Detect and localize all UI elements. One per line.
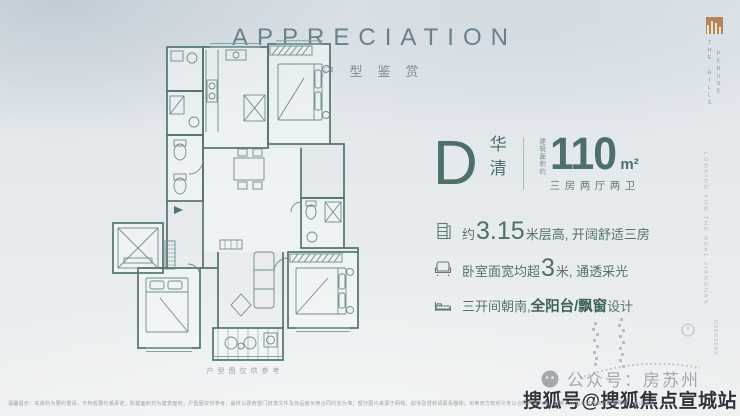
feature-text: 三开间朝南, bbox=[462, 296, 531, 315]
unit-heading: D 华清 建筑面积约 110 m² 三房两厅两卫 bbox=[433, 132, 683, 196]
feature-highlight: 全阳台/飘窗 bbox=[531, 295, 608, 316]
feature-text: 约 bbox=[462, 224, 475, 243]
feature-text: 设计 bbox=[607, 296, 633, 315]
unit-letter: D bbox=[433, 138, 478, 191]
side-vertical-text: LOOKING FOR THE REAL JIANGNAN bbox=[702, 152, 708, 306]
building-height-icon bbox=[433, 221, 453, 241]
feature-row-height: 约 3.15 米层高, 开阔舒适三房 bbox=[433, 218, 683, 244]
brand-name-line2: THE HILLS bbox=[707, 40, 713, 108]
feature-number: 3.15 bbox=[476, 220, 525, 243]
unit-name: 华清 bbox=[484, 135, 509, 193]
poster: APPRECIATION 户型鉴赏 PERUSE THE HILLS LOOKI… bbox=[0, 0, 740, 416]
divider bbox=[523, 138, 524, 190]
entry-arrow bbox=[174, 206, 183, 214]
floorplan-drawing bbox=[98, 40, 392, 374]
floorplan: 户型图仅供参考 bbox=[98, 40, 392, 378]
sofa-icon bbox=[433, 258, 453, 278]
floorplan-caption: 户型图仅供参考 bbox=[98, 366, 392, 376]
corner-vertical-text: OVERSEAS bbox=[712, 320, 718, 356]
area-value: 110 bbox=[550, 135, 616, 173]
feature-text: 米, 通透采光 bbox=[556, 261, 628, 280]
brand-name: PERUSE THE HILLS bbox=[699, 40, 729, 108]
feature-row-orientation: 三开间朝南, 全阳台/飘窗 设计 bbox=[433, 292, 683, 318]
feature-text: 卧室面宽均超 bbox=[462, 261, 540, 280]
brand-block: PERUSE THE HILLS bbox=[699, 17, 729, 108]
unit-info-panel: D 华清 建筑面积约 110 m² 三房两厅两卫 约 3.15 米层高 bbox=[433, 132, 683, 329]
area-group: 110 m² 三房两厅两卫 bbox=[550, 135, 640, 193]
feature-list: 约 3.15 米层高, 开阔舒适三房 卧室面宽均超 3 米, 通透采光 bbox=[433, 218, 683, 318]
feature-text: 米层高, 开阔舒适三房 bbox=[526, 224, 650, 243]
brand-name-line1: PERUSE bbox=[716, 40, 722, 108]
area-label: 建筑面积约 bbox=[536, 138, 546, 190]
feature-row-width: 卧室面宽均超 3 米, 通透采光 bbox=[433, 255, 683, 281]
bed-icon bbox=[433, 295, 453, 315]
legal-disclaimer: 温馨提示：本资料为要约邀请，不构成要约或承诺；所载面积均为建筑面积，户型图仅供参… bbox=[8, 400, 734, 407]
feature-number: 3 bbox=[541, 257, 555, 280]
area-unit: m² bbox=[620, 157, 638, 174]
hills-logo-icon bbox=[706, 17, 723, 34]
unit-layout: 三房两厅两卫 bbox=[550, 178, 640, 193]
